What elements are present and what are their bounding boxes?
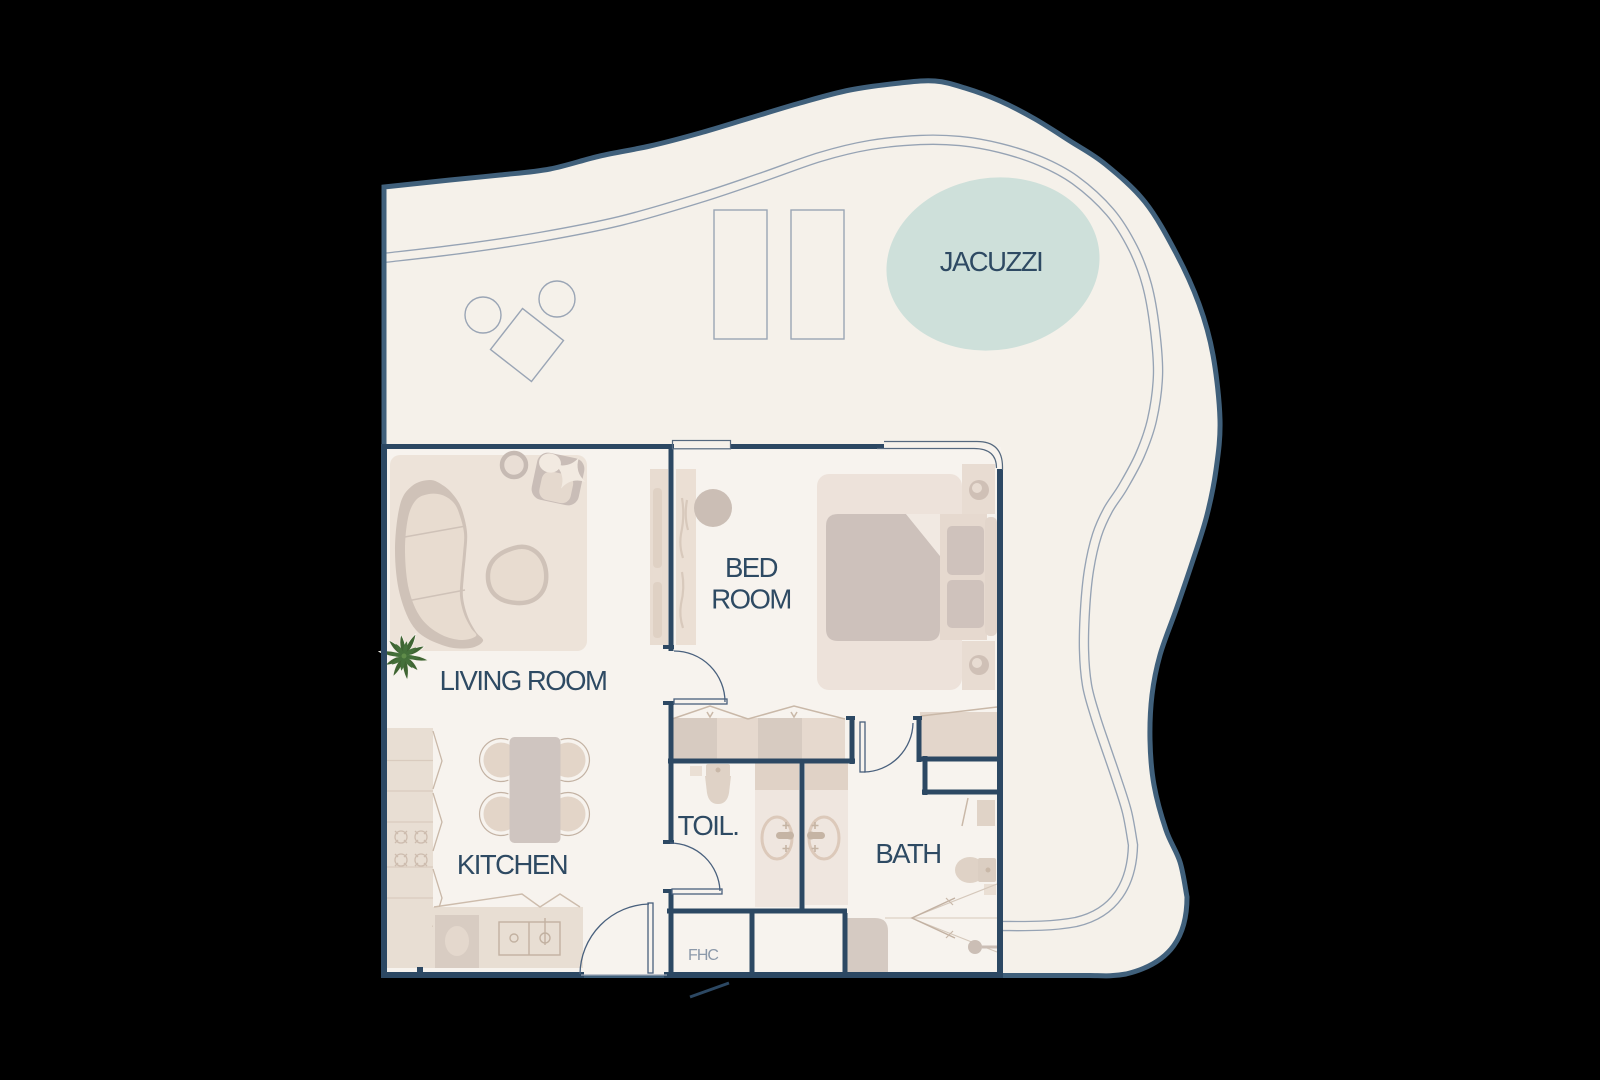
svg-text:ROOM: ROOM — [711, 584, 791, 615]
svg-text:TOIL.: TOIL. — [678, 810, 739, 841]
svg-text:FHC: FHC — [688, 947, 718, 964]
svg-text:JACUZZI: JACUZZI — [940, 246, 1043, 277]
svg-text:LIVING ROOM: LIVING ROOM — [440, 665, 607, 696]
svg-text:BATH: BATH — [875, 838, 940, 869]
svg-text:BED: BED — [725, 552, 778, 583]
svg-text:KITCHEN: KITCHEN — [457, 849, 567, 880]
